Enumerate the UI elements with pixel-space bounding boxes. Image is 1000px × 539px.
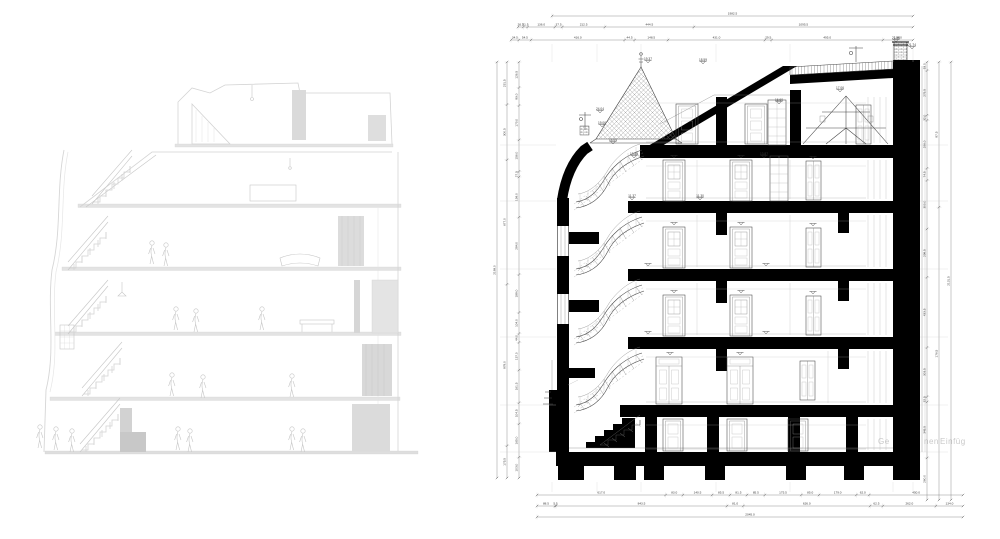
door	[806, 161, 821, 200]
watermark-text-2: nen	[924, 437, 939, 446]
svg-text:44.0: 44.0	[515, 335, 519, 341]
roof-vent-icon	[849, 46, 863, 62]
svg-text:32.0: 32.0	[923, 115, 927, 121]
svg-text:2045.0: 2045.0	[745, 513, 755, 517]
cabinet	[768, 100, 786, 145]
svg-text:27.5: 27.5	[515, 171, 519, 177]
elevation-label: 21.74	[908, 43, 916, 47]
door	[730, 160, 752, 201]
svg-text:2189.0: 2189.0	[493, 265, 497, 275]
svg-text:199.0: 199.0	[515, 193, 519, 201]
screenshot-canvas: Ge nen Einfüg	[0, 0, 1000, 539]
ghost-stairs	[68, 150, 132, 452]
elevation-label: 11.37	[628, 194, 636, 198]
elevation-label: 14.04	[609, 138, 617, 142]
svg-text:450.0: 450.0	[912, 491, 920, 495]
elevation-label: 18.59	[699, 58, 707, 62]
svg-text:62.5: 62.5	[873, 502, 879, 506]
svg-text:44.5: 44.5	[627, 36, 633, 40]
cabinet	[770, 156, 788, 201]
svg-text:300.5: 300.5	[503, 128, 507, 136]
elevation-label: 13.88	[630, 152, 638, 156]
door	[727, 419, 747, 451]
svg-text:85.5: 85.5	[718, 491, 724, 495]
watermark-text-1: Ge	[878, 437, 890, 446]
entrance-steps	[586, 418, 635, 448]
svg-text:303.5: 303.5	[923, 368, 927, 376]
elevation-label: 17.06	[836, 86, 844, 90]
svg-text:275.5: 275.5	[923, 89, 927, 97]
svg-text:843.5: 843.5	[638, 502, 646, 506]
svg-text:212.5: 212.5	[580, 23, 588, 27]
svg-text:53.0: 53.0	[923, 63, 927, 69]
svg-text:296.0: 296.0	[923, 140, 927, 148]
svg-text:88.5: 88.5	[543, 502, 549, 506]
door	[806, 296, 821, 335]
svg-text:1982.5: 1982.5	[728, 12, 738, 16]
door	[730, 227, 752, 268]
svg-text:104.5: 104.5	[515, 409, 519, 417]
svg-text:165.0: 165.0	[515, 436, 519, 444]
svg-text:161.5: 161.5	[515, 382, 519, 390]
watermark-text-3: Einfüg	[940, 437, 966, 446]
elevation-label: 19.37	[644, 57, 652, 61]
svg-text:345.5: 345.5	[923, 426, 927, 434]
turret-vent-icon	[579, 112, 591, 135]
roof-truss	[803, 96, 888, 144]
svg-text:134.0: 134.0	[946, 502, 954, 506]
svg-text:74.5: 74.5	[923, 171, 927, 177]
svg-text:175.5: 175.5	[503, 458, 507, 466]
door	[800, 361, 815, 400]
svg-text:140.5: 140.5	[694, 491, 702, 495]
door	[663, 419, 683, 451]
svg-text:677.0: 677.0	[503, 218, 507, 226]
svg-text:21.5: 21.5	[522, 23, 528, 27]
svg-text:81.0: 81.0	[732, 502, 738, 506]
door	[727, 357, 753, 404]
svg-text:29.5: 29.5	[765, 36, 771, 40]
svg-text:433.5: 433.5	[923, 308, 927, 316]
svg-text:104.0: 104.0	[515, 319, 519, 327]
svg-text:617.0: 617.0	[597, 491, 605, 495]
svg-text:89.0: 89.0	[515, 93, 519, 99]
svg-text:284.0: 284.0	[515, 242, 519, 250]
svg-text:416.0: 416.0	[574, 36, 582, 40]
svg-text:136.0: 136.0	[537, 23, 545, 27]
svg-text:87.5: 87.5	[935, 131, 939, 137]
svg-text:300.0: 300.0	[923, 201, 927, 209]
elevation-label: 19.06	[598, 121, 606, 125]
door	[656, 357, 682, 404]
elevation-label: 16.60	[775, 98, 783, 102]
svg-text:179.0: 179.0	[834, 491, 842, 495]
elevation-label: 24.04	[596, 107, 604, 111]
svg-text:878.0: 878.0	[503, 361, 507, 369]
elevation-label: 21.48	[892, 36, 900, 40]
svg-text:1095.5: 1095.5	[799, 23, 809, 27]
svg-text:298.5: 298.5	[923, 249, 927, 257]
door	[806, 228, 821, 267]
svg-text:431.0: 431.0	[713, 36, 721, 40]
svg-text:231.5: 231.5	[503, 79, 507, 87]
svg-text:85.5: 85.5	[753, 491, 759, 495]
svg-text:34.5: 34.5	[512, 36, 518, 40]
svg-text:62.0: 62.0	[860, 491, 866, 495]
svg-text:126.5: 126.5	[515, 71, 519, 79]
svg-text:85.0: 85.0	[807, 491, 813, 495]
svg-text:83.0: 83.0	[671, 491, 677, 495]
door	[663, 295, 685, 336]
door	[730, 295, 752, 336]
svg-text:170.0: 170.0	[515, 119, 519, 127]
door	[663, 227, 685, 268]
svg-text:176.5: 176.5	[935, 349, 939, 357]
chimney	[892, 42, 909, 62]
svg-text:32.5: 32.5	[923, 396, 927, 402]
svg-text:2131.5: 2131.5	[947, 276, 951, 286]
svg-text:156.0: 156.0	[515, 151, 519, 159]
point-cloud-section	[37, 83, 418, 454]
right-wall	[893, 60, 925, 452]
svg-text:54.5: 54.5	[522, 36, 528, 40]
svg-text:262.0: 262.0	[905, 502, 913, 506]
svg-text:188.0: 188.0	[515, 289, 519, 297]
svg-text:175.5: 175.5	[779, 491, 787, 495]
svg-text:37.5: 37.5	[556, 23, 562, 27]
svg-text:137.0: 137.0	[515, 352, 519, 360]
door	[745, 104, 767, 144]
svg-text:103.0: 103.0	[515, 463, 519, 471]
svg-text:444.5: 444.5	[645, 23, 653, 27]
elevation-label: 13.87	[760, 152, 768, 156]
elevation-label: 11.30	[696, 194, 704, 198]
svg-text:626.0: 626.0	[803, 502, 811, 506]
svg-text:148.5: 148.5	[647, 36, 655, 40]
section-drawings-svg: Ge nen Einfüg	[0, 0, 1000, 539]
ghost-figures	[37, 241, 306, 452]
door	[663, 160, 685, 201]
svg-text:495.0: 495.0	[823, 36, 831, 40]
svg-text:81.5: 81.5	[735, 491, 741, 495]
svg-text:260.0: 260.0	[923, 475, 927, 483]
cad-section: Ge nen Einfüg	[493, 12, 966, 520]
foundation	[556, 448, 920, 480]
